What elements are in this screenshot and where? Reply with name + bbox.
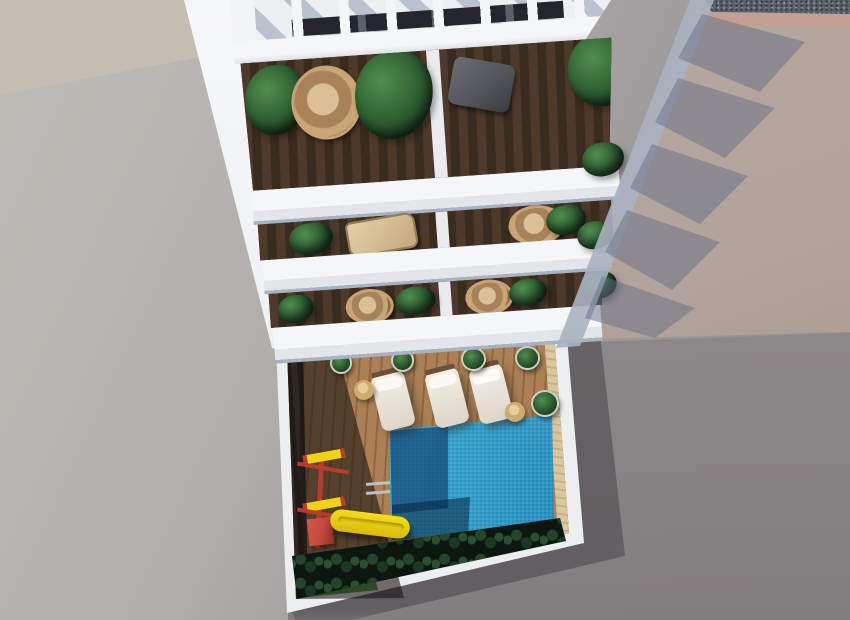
- deck-potted-plant-4: [531, 390, 559, 417]
- banana-plant-right: [565, 30, 642, 109]
- interior2-plant-left: [288, 221, 334, 256]
- balcony-interior-1: [240, 37, 620, 191]
- balcony-divider-wall-2: [435, 211, 449, 248]
- side-table-1: [354, 380, 374, 400]
- side-table-2: [505, 402, 525, 422]
- interior3-plant-left: [277, 294, 315, 324]
- balcony-divider-wall: [426, 50, 448, 179]
- aerial-render-scene: [0, 0, 850, 620]
- interior3-plant-mid: [395, 285, 437, 316]
- balcony-divider-wall-3: [438, 281, 452, 316]
- interior3-plant-end: [580, 270, 618, 300]
- banana-plant-left: [352, 48, 436, 141]
- gray-recliner: [447, 56, 516, 114]
- building: [230, 0, 655, 369]
- interior3-plant-right: [508, 278, 548, 308]
